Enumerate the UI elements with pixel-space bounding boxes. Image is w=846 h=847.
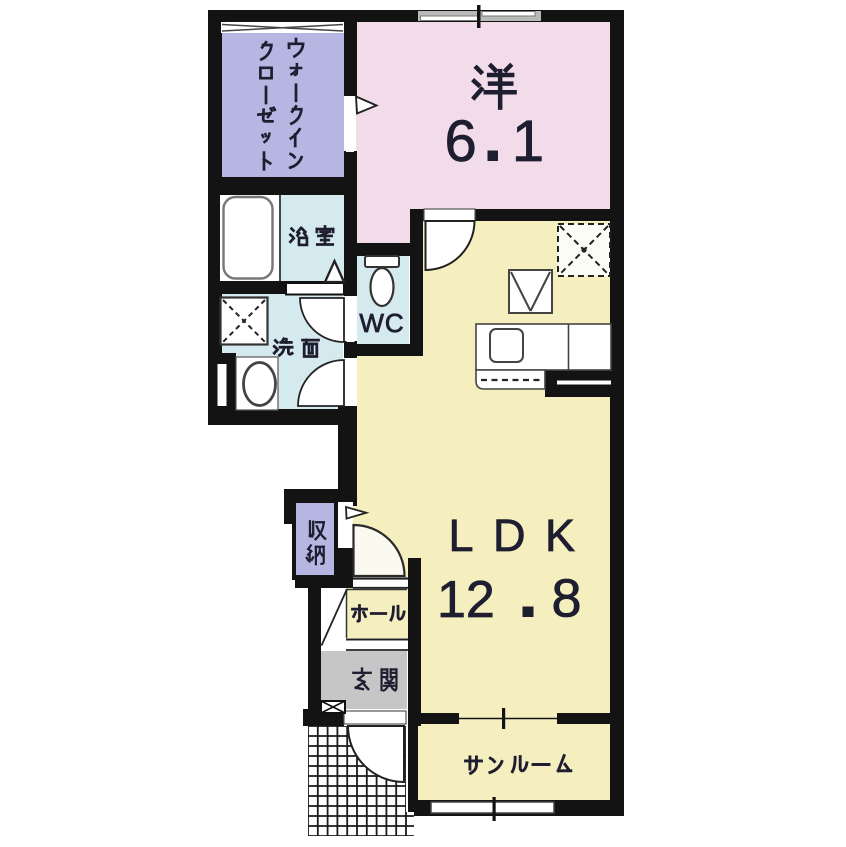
- svg-text:WC: WC: [359, 308, 404, 338]
- svg-text:8: 8: [551, 569, 581, 629]
- svg-text:LDK: LDK: [448, 510, 594, 561]
- svg-text:12: 12: [437, 571, 495, 629]
- svg-text:1: 1: [512, 109, 544, 174]
- svg-text:6: 6: [445, 109, 477, 174]
